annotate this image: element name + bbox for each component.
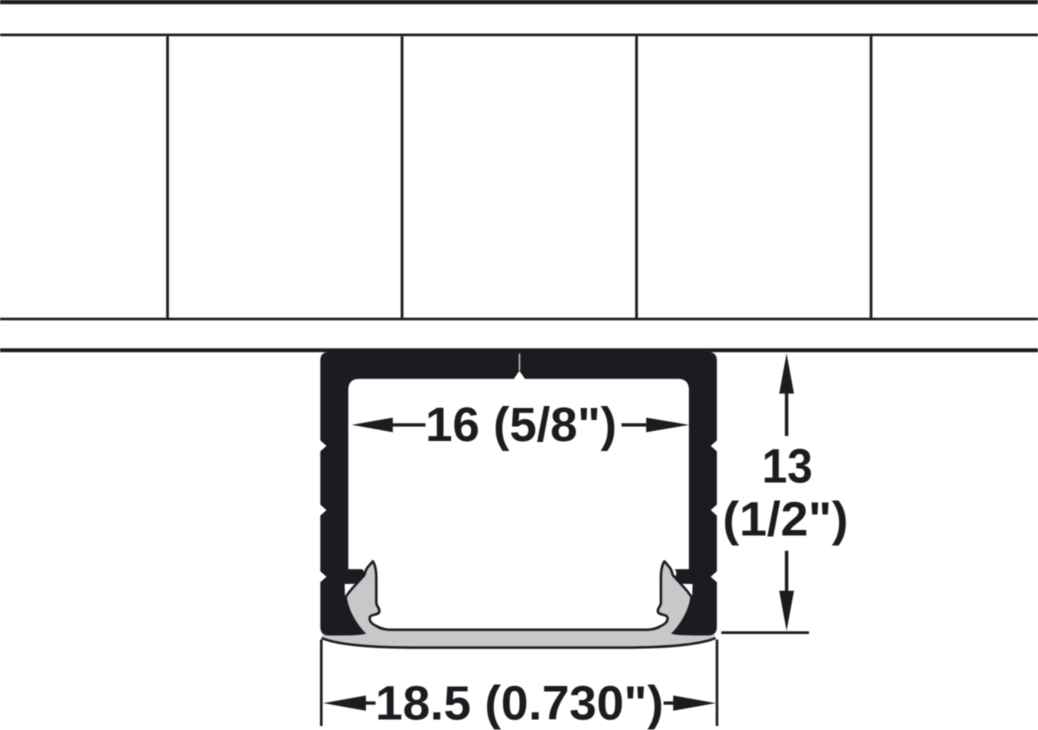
svg-text:13: 13 — [762, 441, 813, 494]
svg-text:(1/2"): (1/2") — [723, 494, 849, 547]
svg-text:18.5 (0.730"): 18.5 (0.730") — [375, 677, 663, 730]
svg-text:16 (5/8"): 16 (5/8") — [425, 399, 616, 452]
